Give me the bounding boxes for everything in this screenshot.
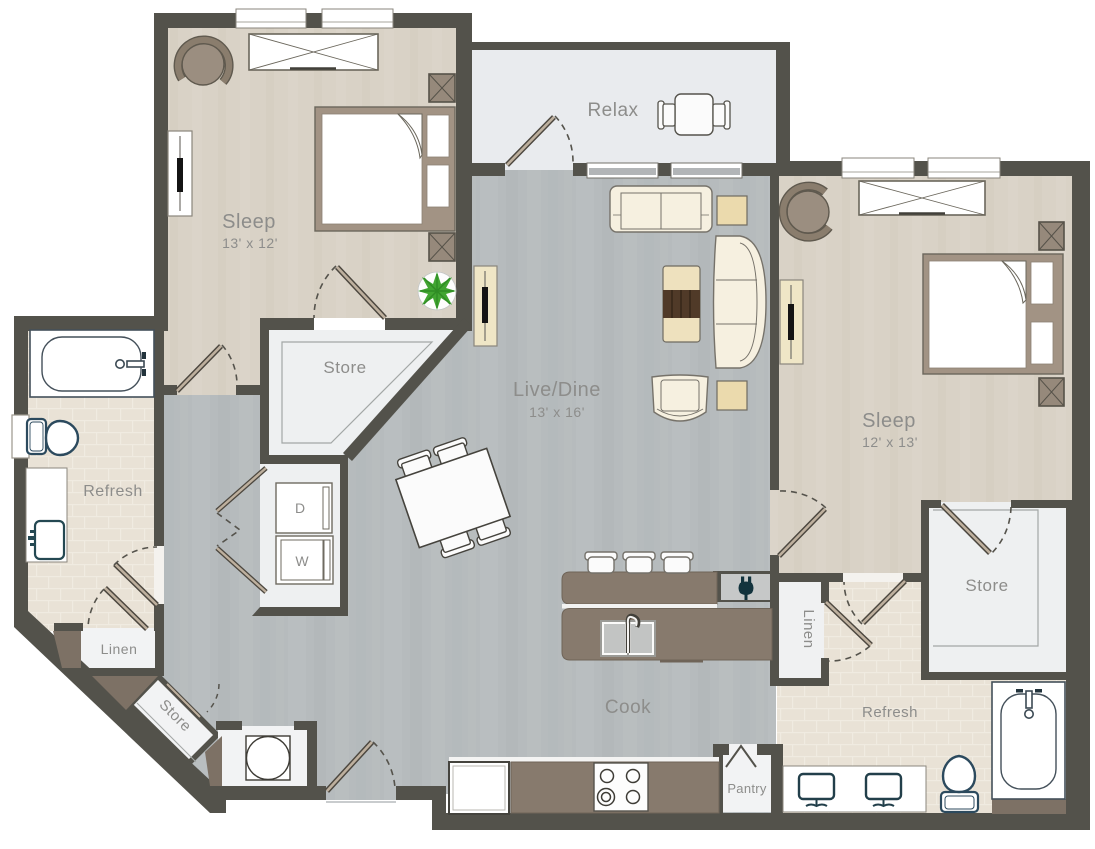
svg-text:Refresh: Refresh — [83, 483, 143, 500]
svg-text:13' x 16': 13' x 16' — [529, 404, 585, 420]
svg-text:Store: Store — [965, 576, 1008, 595]
svg-text:Live/Dine: Live/Dine — [513, 379, 601, 401]
svg-text:Sleep: Sleep — [222, 211, 276, 233]
svg-text:W: W — [295, 553, 309, 569]
svg-text:13' x 12': 13' x 12' — [222, 235, 278, 251]
svg-text:Sleep: Sleep — [862, 410, 916, 432]
svg-text:D: D — [295, 500, 305, 516]
svg-text:Store: Store — [323, 358, 366, 377]
svg-text:Linen: Linen — [800, 609, 817, 648]
svg-text:Refresh: Refresh — [862, 704, 918, 721]
svg-text:Relax: Relax — [587, 100, 638, 121]
svg-text:Pantry: Pantry — [727, 781, 767, 796]
svg-text:Linen: Linen — [101, 641, 138, 657]
svg-text:Cook: Cook — [605, 697, 651, 718]
svg-text:12' x 13': 12' x 13' — [862, 434, 918, 450]
